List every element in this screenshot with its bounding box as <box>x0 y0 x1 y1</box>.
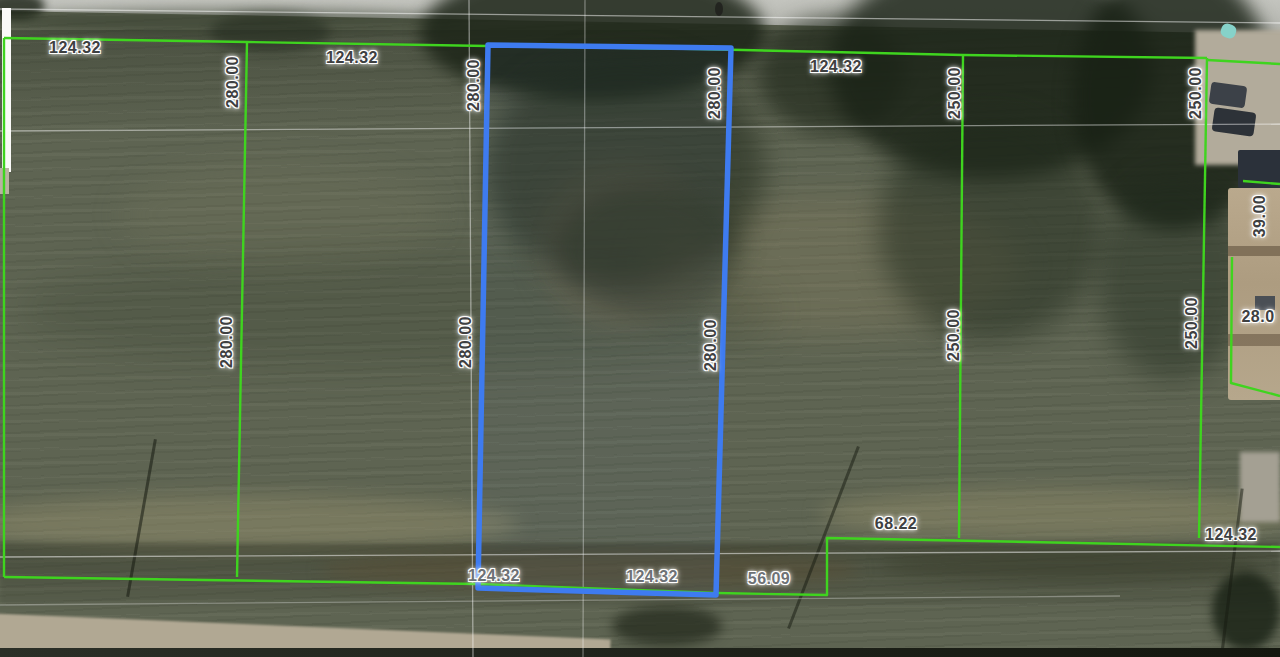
selected-parcel-outline[interactable] <box>478 45 731 595</box>
parcel-line-south-west <box>4 577 478 584</box>
line-overlay <box>0 0 1280 657</box>
dimension-label-frontage: 124.32 <box>626 568 678 586</box>
dimension-label-depth: 280.00 <box>457 316 475 368</box>
dimension-label-depth: 250.00 <box>946 67 964 119</box>
dimension-label-frontage: 124.32 <box>810 58 862 76</box>
survey-grid-line-h3 <box>0 596 1120 605</box>
road-edge-line <box>0 9 1280 23</box>
map-canvas[interactable]: 124.32 124.32 124.32 280.00 280.00 280.0… <box>0 0 1280 657</box>
parcel-line-north-east <box>1207 60 1280 64</box>
dimension-label-width: 28.0 <box>1241 308 1274 326</box>
dimension-label-depth: 280.00 <box>702 319 720 371</box>
dimension-label-depth: 280.00 <box>706 67 724 119</box>
dimension-label-depth: 39.00 <box>1251 195 1269 238</box>
dimension-label-width: 56.09 <box>748 570 791 588</box>
dimension-label-width: 124.32 <box>1205 526 1257 544</box>
parcel-line-lot3-east <box>959 55 963 538</box>
dimension-label-frontage: 124.32 <box>326 49 378 67</box>
dimension-label-depth: 250.00 <box>945 309 963 361</box>
parcel-line-house-lot <box>1231 257 1280 396</box>
dimension-label-frontage: 124.32 <box>468 567 520 585</box>
dimension-label-depth: 280.00 <box>218 316 236 368</box>
parcel-line-lot1-east <box>237 42 247 577</box>
dimension-label-depth: 250.00 <box>1183 297 1201 349</box>
dimension-label-depth: 250.00 <box>1187 67 1205 119</box>
parcel-line-shed-lot <box>1243 181 1280 184</box>
dimension-label-depth: 280.00 <box>465 59 483 111</box>
dimension-label-width: 68.22 <box>875 515 918 533</box>
dimension-label-frontage: 124.32 <box>49 39 101 57</box>
dimension-label-depth: 280.00 <box>224 56 242 108</box>
